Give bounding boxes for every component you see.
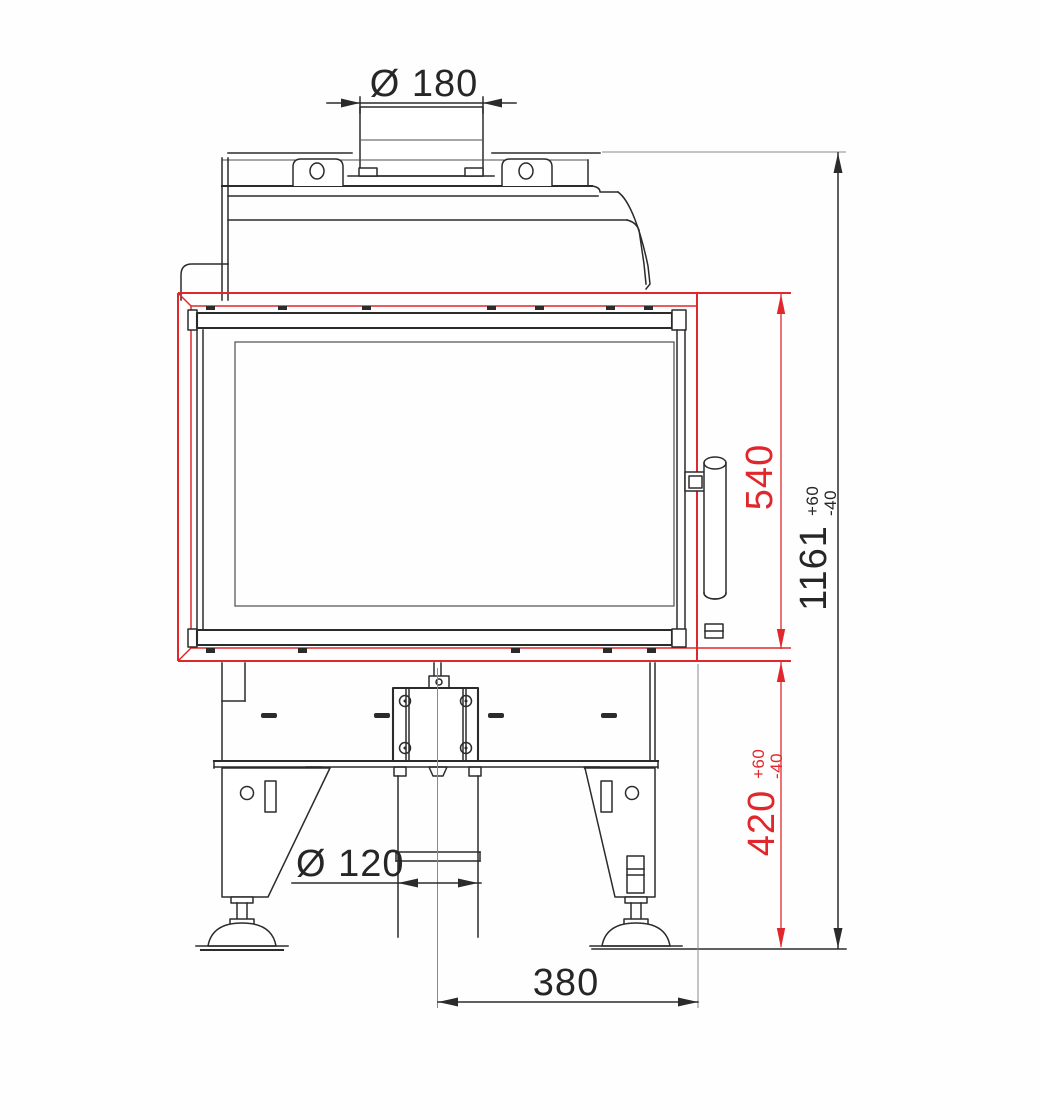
arrow-left-icon (483, 99, 502, 108)
smoke-chamber (181, 158, 650, 300)
dim-base-height-tolerance-minus: -40 (767, 753, 786, 779)
dimension-flue-diameter: Ø 180 (327, 63, 516, 113)
handle-bracket (685, 472, 706, 491)
door-glass (235, 342, 674, 606)
door-assembly (188, 310, 686, 647)
arrow-up-icon (777, 294, 785, 314)
adjustable-foot-right (590, 897, 682, 946)
adjustable-foot-left (196, 897, 288, 950)
dim-total-height-tolerance-plus: +60 (803, 486, 822, 516)
arrow-down-icon (777, 629, 785, 649)
dim-center-to-edge-label: 380 (533, 962, 599, 1004)
drawing-page: Ø 180 540 420 +60 -40 1161 +60 -40 (0, 0, 1040, 1120)
mounting-bracket-right (502, 159, 552, 186)
arrow-right-icon (458, 879, 478, 888)
door-handle (704, 457, 726, 599)
door-latch-plate (705, 624, 723, 638)
flue-damper-box (393, 663, 478, 761)
dim-total-height-tolerance-minus: -40 (821, 490, 840, 516)
dim-base-height-label: 420 (741, 790, 783, 856)
dim-total-height-label: 1161 (793, 525, 835, 611)
arrow-up-icon (777, 662, 785, 682)
dim-pipe-diameter-label: Ø 120 (296, 843, 405, 885)
dimension-door-frame-height: 540 (739, 294, 785, 649)
arrow-down-icon (777, 928, 785, 948)
support-leg-right (585, 768, 655, 897)
dim-flue-diameter-label: Ø 180 (370, 63, 479, 105)
dim-door-frame-height-label: 540 (739, 444, 781, 510)
arrow-right-icon (341, 99, 360, 108)
arrow-left-icon (438, 998, 458, 1007)
dim-base-height-tolerance-plus: +60 (749, 749, 768, 779)
arrow-right-icon (678, 998, 698, 1007)
dimension-pipe-diameter: Ø 120 (292, 843, 481, 888)
mounting-bracket-left (293, 159, 343, 186)
technical-drawing: Ø 180 540 420 +60 -40 1161 +60 -40 (0, 0, 1040, 1120)
arrow-up-icon (834, 153, 843, 173)
arrow-down-icon (834, 928, 843, 948)
dimension-base-height: 420 +60 -40 (741, 662, 786, 948)
